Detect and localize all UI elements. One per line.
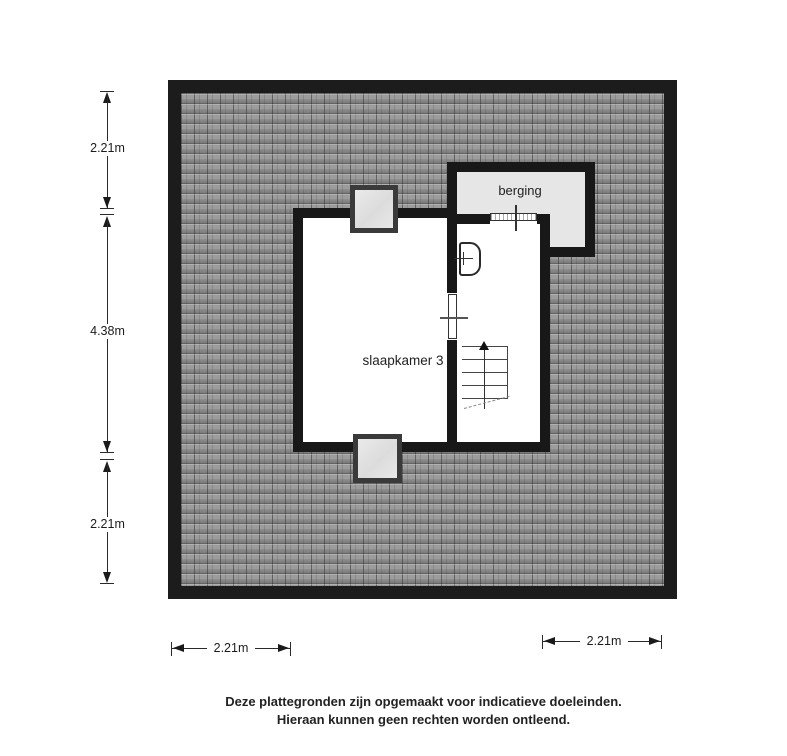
dim-label: 4.38m bbox=[84, 324, 131, 339]
dim-label: 2.21m bbox=[84, 517, 131, 532]
stairs-up-arrow-icon bbox=[479, 341, 489, 350]
dim-tick bbox=[661, 635, 662, 649]
disclaimer: Deze plattegronden zijn opgemaakt voor i… bbox=[40, 693, 787, 728]
door-axis-line bbox=[440, 317, 468, 319]
dim-arrow-down-icon bbox=[103, 197, 111, 208]
dim-tick bbox=[100, 452, 114, 453]
dormer-top bbox=[350, 185, 398, 233]
dim-arrow-left-icon bbox=[173, 644, 184, 652]
dim-label: 2.21m bbox=[84, 141, 131, 156]
dim-tick bbox=[100, 208, 114, 209]
dim-label: 2.21m bbox=[580, 634, 628, 649]
room-label-berging: berging bbox=[480, 184, 560, 198]
dim-tick bbox=[100, 459, 114, 460]
berging-door bbox=[490, 213, 537, 221]
disclaimer-line-1: Deze plattegronden zijn opgemaakt voor i… bbox=[40, 693, 787, 711]
sink-tap-icon bbox=[463, 252, 464, 265]
dim-arrow-down-icon bbox=[103, 572, 111, 583]
dim-tick bbox=[100, 214, 114, 215]
dim-tick bbox=[100, 583, 114, 584]
room-label-slaapkamer: slaapkamer 3 bbox=[343, 354, 463, 368]
stairs bbox=[462, 341, 509, 411]
dim-arrow-right-icon bbox=[649, 637, 660, 645]
dim-arrow-down-icon bbox=[103, 441, 111, 452]
berging-door-axis-line bbox=[515, 205, 517, 231]
floorplan-page: slaapkamer 3 berging 2.21m 4.38m 2.21m 2… bbox=[0, 0, 787, 756]
dim-tick bbox=[290, 642, 291, 656]
dim-label: 2.21m bbox=[207, 641, 255, 656]
stair-edge bbox=[507, 346, 508, 399]
stair-walkline bbox=[484, 343, 485, 409]
disclaimer-line-2: Hieraan kunnen geen rechten worden ontle… bbox=[40, 711, 787, 729]
dim-arrow-left-icon bbox=[544, 637, 555, 645]
dormer-bottom bbox=[353, 434, 402, 483]
room-slaapkamer-3 bbox=[293, 208, 457, 452]
dim-arrow-right-icon bbox=[278, 644, 289, 652]
